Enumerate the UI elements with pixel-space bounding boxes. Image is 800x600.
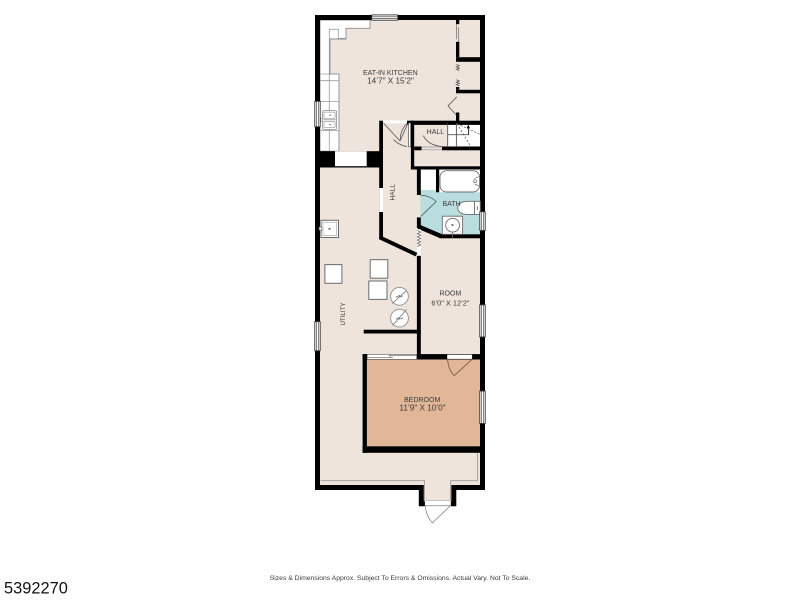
svg-text:HALL: HALL: [427, 129, 445, 136]
svg-text:14’7" X 15’2": 14’7" X 15’2": [367, 77, 414, 86]
svg-text:5392270: 5392270: [4, 580, 68, 598]
svg-text:BATH: BATH: [443, 201, 461, 208]
svg-text:HALL: HALL: [390, 184, 397, 201]
svg-text:6’0" X 12’2": 6’0" X 12’2": [431, 298, 469, 307]
svg-text:11’9" X 10’0": 11’9" X 10’0": [399, 404, 445, 413]
svg-text:Sizes & Dimensions Approx. Sub: Sizes & Dimensions Approx. Subject To Er…: [270, 575, 531, 582]
svg-text:UTILITY: UTILITY: [340, 302, 347, 325]
svg-text:ROOM: ROOM: [440, 291, 462, 298]
